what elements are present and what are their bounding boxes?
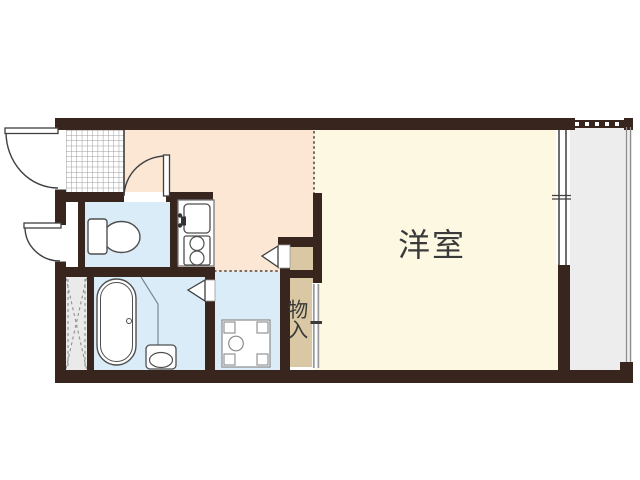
genkan-tile — [66, 130, 124, 194]
western-room-label: 洋室 — [398, 226, 466, 264]
wall-bottom — [55, 370, 633, 383]
closet-label: 物 入 — [288, 298, 309, 342]
floor-plan-image: 洋室 物 入 — [0, 0, 640, 480]
wall-bath-washroom-top — [205, 270, 215, 280]
entrance-door — [5, 128, 66, 190]
toilet — [88, 219, 140, 254]
wall-toilet-kitchen — [170, 192, 178, 267]
two-burner-stove — [184, 236, 210, 265]
wall-closet-westernroom — [313, 193, 322, 283]
room-floors — [66, 127, 632, 370]
balcony-floor — [570, 127, 632, 370]
wall-top — [55, 118, 575, 130]
kitchen-counter — [178, 200, 214, 266]
balcony-corner-bottom — [620, 362, 633, 371]
wash-basin — [146, 345, 176, 369]
wall-bath-washroom-bottom — [205, 300, 215, 370]
meter-box-door — [24, 223, 66, 262]
bathtub — [97, 279, 136, 365]
kitchen-sink — [184, 204, 210, 233]
wall-left-lower — [55, 262, 66, 383]
meter-box-space — [66, 202, 78, 267]
wall-toilet-bottom — [55, 267, 215, 277]
wall-genkan-bottom — [55, 192, 124, 202]
balcony-corner-top — [624, 118, 633, 130]
wall-right-lower — [558, 265, 570, 370]
balcony-railing — [573, 120, 624, 128]
washing-machine-pan — [222, 320, 270, 367]
wall-ps-bath — [87, 277, 94, 370]
closet-upper-floor — [290, 247, 313, 270]
wall-mb-toilet — [78, 202, 85, 267]
floor-plan-canvas: 洋室 物 入 — [0, 0, 640, 480]
svg-text:入: 入 — [288, 318, 309, 342]
wall-closet-mid — [280, 270, 320, 278]
